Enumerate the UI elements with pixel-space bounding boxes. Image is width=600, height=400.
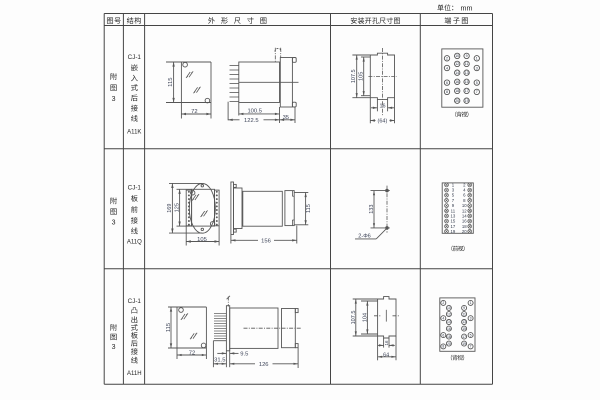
svg-text:156: 156 xyxy=(261,238,271,244)
svg-text:31.5: 31.5 xyxy=(214,358,225,364)
svg-text:35: 35 xyxy=(283,115,289,121)
svg-text:(64): (64) xyxy=(378,118,388,124)
svg-text:mm: mm xyxy=(461,3,473,12)
svg-text:5: 5 xyxy=(470,333,472,337)
svg-text:1: 1 xyxy=(470,301,472,305)
svg-text:A11Q: A11Q xyxy=(127,240,142,246)
svg-text:15: 15 xyxy=(462,327,466,331)
svg-text:20: 20 xyxy=(447,342,451,346)
svg-text:122.5: 122.5 xyxy=(244,118,259,124)
svg-text:11: 11 xyxy=(462,312,466,316)
svg-text:72: 72 xyxy=(191,109,197,115)
svg-text:9: 9 xyxy=(463,306,465,310)
svg-text:13: 13 xyxy=(465,71,469,75)
svg-text:18: 18 xyxy=(447,335,451,339)
svg-text:5: 5 xyxy=(476,81,478,85)
svg-text:CJ-1: CJ-1 xyxy=(128,298,142,305)
svg-text:7: 7 xyxy=(470,345,472,349)
svg-text:115: 115 xyxy=(168,78,174,87)
svg-text:10: 10 xyxy=(447,306,451,310)
svg-text:133: 133 xyxy=(369,205,375,214)
svg-text:3: 3 xyxy=(112,219,116,226)
svg-text:105: 105 xyxy=(197,237,207,243)
svg-text:10: 10 xyxy=(455,54,459,58)
svg-text:1: 1 xyxy=(476,57,478,61)
svg-text:A11H: A11H xyxy=(127,371,142,377)
svg-text:115: 115 xyxy=(166,323,172,332)
svg-text:16: 16 xyxy=(379,103,385,109)
svg-text:3: 3 xyxy=(476,66,478,70)
svg-text:6: 6 xyxy=(446,81,448,85)
svg-text:4: 4 xyxy=(442,316,444,320)
svg-text:19: 19 xyxy=(465,99,469,103)
svg-text:16: 16 xyxy=(447,327,451,331)
svg-text:115: 115 xyxy=(306,204,312,213)
svg-text:9: 9 xyxy=(466,54,468,58)
svg-text:105: 105 xyxy=(358,72,364,81)
svg-text:16: 16 xyxy=(384,340,389,346)
svg-text:19: 19 xyxy=(462,342,466,346)
svg-text:11: 11 xyxy=(465,62,469,66)
svg-text:3: 3 xyxy=(112,96,116,103)
svg-text:2: 2 xyxy=(446,57,448,61)
svg-text:18: 18 xyxy=(455,89,459,93)
svg-text:3: 3 xyxy=(470,316,472,320)
svg-text:12: 12 xyxy=(455,62,459,66)
svg-text:4: 4 xyxy=(446,66,448,70)
svg-text:126: 126 xyxy=(259,362,269,368)
svg-text:2-Φ6: 2-Φ6 xyxy=(358,234,371,240)
svg-text:8: 8 xyxy=(442,345,444,349)
svg-text:20: 20 xyxy=(462,229,467,234)
svg-text:15: 15 xyxy=(465,80,469,84)
svg-text:12: 12 xyxy=(447,312,451,316)
svg-text:16: 16 xyxy=(455,80,459,84)
svg-text:9.5: 9.5 xyxy=(240,351,248,357)
svg-text:14: 14 xyxy=(455,71,459,75)
svg-text:107.5: 107.5 xyxy=(351,69,357,83)
svg-text:20: 20 xyxy=(455,99,459,103)
svg-text:19: 19 xyxy=(451,229,456,234)
svg-text:107.5: 107.5 xyxy=(351,311,357,325)
svg-text:8: 8 xyxy=(446,90,448,94)
svg-text:64: 64 xyxy=(383,352,389,358)
svg-text:100.5: 100.5 xyxy=(247,109,262,115)
svg-text:13: 13 xyxy=(462,320,466,324)
svg-text:17: 17 xyxy=(465,89,469,93)
svg-text:169: 169 xyxy=(167,204,173,213)
svg-text:CJ-1: CJ-1 xyxy=(128,54,142,61)
svg-text:104: 104 xyxy=(362,313,368,322)
svg-text:125: 125 xyxy=(174,203,180,212)
svg-text:17: 17 xyxy=(462,335,466,339)
svg-text:7: 7 xyxy=(476,90,478,94)
svg-text:6: 6 xyxy=(442,333,444,337)
svg-text:2: 2 xyxy=(442,301,444,305)
svg-text:72: 72 xyxy=(189,350,195,356)
svg-text:A11K: A11K xyxy=(127,129,141,135)
svg-text:3: 3 xyxy=(112,344,116,351)
svg-text:CJ-1: CJ-1 xyxy=(128,185,142,192)
svg-text:14: 14 xyxy=(447,320,451,324)
